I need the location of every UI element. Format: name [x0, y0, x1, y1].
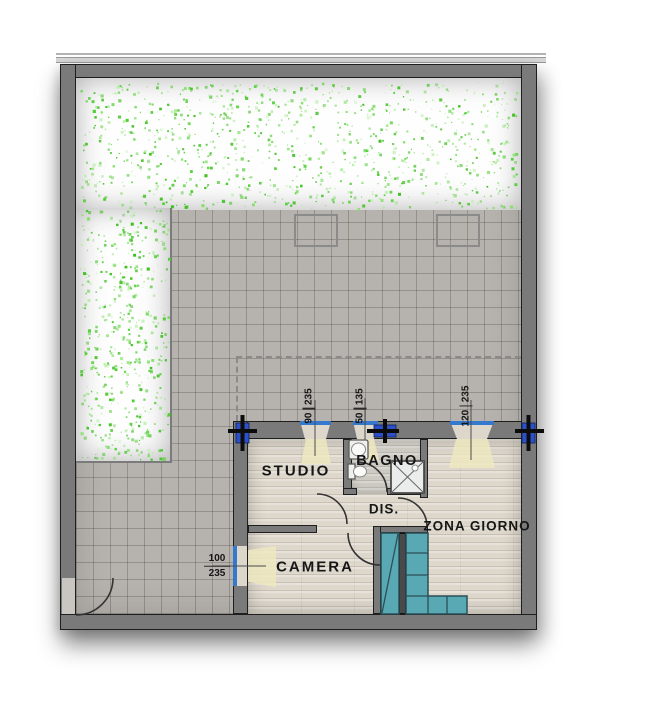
wall-camera-right: [373, 526, 381, 614]
room-label-zona-giorno: ZONA GIORNO: [423, 519, 530, 534]
dim-width: 120: [461, 410, 472, 427]
wall-bagno-bottom-left: [343, 488, 357, 495]
fraction-bar: [204, 565, 230, 567]
dim-height: 235: [304, 388, 315, 405]
plot-wall-left: [60, 64, 76, 630]
garden-top: [76, 78, 521, 210]
plot-wall-top: [60, 64, 537, 78]
dim-width: 90: [304, 413, 315, 424]
fraction-bar: [354, 408, 367, 410]
plot-wall-right: [521, 64, 537, 630]
window-camera-glass: [233, 546, 237, 586]
dashed-overhang-outline-h: [236, 356, 521, 358]
dim-width: 100: [209, 553, 226, 565]
wall-studio-bagno: [343, 439, 352, 494]
garden-left: [76, 208, 172, 463]
dimension-window-studio: 90 235: [303, 388, 316, 423]
skylight: [436, 214, 480, 247]
wall-bagno-right: [420, 439, 428, 498]
dimension-window-zona-giorno: 120 235: [460, 386, 473, 427]
room-label-studio: STUDIO: [262, 463, 331, 480]
wall-stair-kitchen-divider: [399, 533, 406, 614]
floor-plan-sheet: STUDIO BAGNO DIS. CAMERA ZONA GIORNO 90 …: [0, 0, 650, 719]
dashed-overhang-outline-v: [236, 357, 238, 421]
dimension-window-camera: 100 235: [204, 553, 230, 580]
dimension-window-bagno: 50 135: [354, 388, 367, 423]
room-label-bagno: BAGNO: [356, 453, 417, 469]
skylight: [294, 214, 338, 247]
dim-height: 135: [355, 388, 366, 405]
fraction-bar: [460, 405, 473, 407]
dim-height: 235: [209, 568, 226, 580]
gate-opening: [62, 578, 75, 614]
room-label-dis: DIS.: [369, 502, 399, 517]
dim-width: 50: [355, 413, 366, 424]
boundary-line-outer: [56, 53, 546, 55]
dim-height: 235: [461, 386, 472, 403]
room-label-camera: CAMERA: [276, 559, 354, 576]
plot-wall-bottom: [60, 614, 537, 630]
boundary-line-inner: [56, 57, 546, 63]
wall-stair-top: [373, 526, 428, 533]
wall-studio-camera: [248, 525, 317, 533]
fraction-bar: [303, 408, 316, 410]
